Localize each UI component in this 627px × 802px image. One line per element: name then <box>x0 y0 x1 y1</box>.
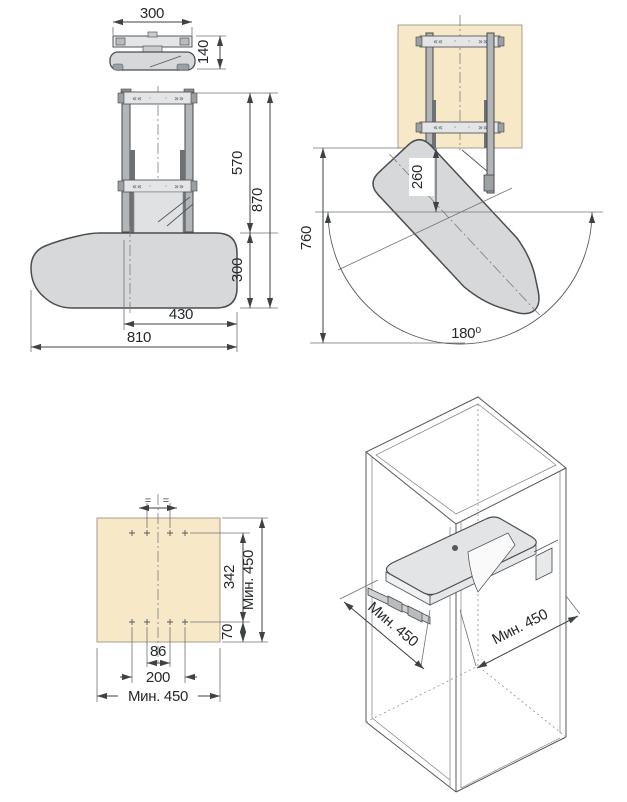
ironing-board-mechanism-drawing: 300 140 «« · · »» <box>0 0 627 802</box>
ironing-board-swung <box>363 130 567 341</box>
bracket-dot: · <box>149 94 152 103</box>
dimension-870: 870 <box>249 93 270 308</box>
equal-mark-left: = <box>145 495 151 507</box>
bracket-arrows-left: «« <box>433 123 443 132</box>
dimension-width-300: 300 <box>113 5 192 35</box>
dim-label-min450-v: Мин. 450 <box>240 550 257 610</box>
rail-bracket-2 <box>408 606 422 622</box>
rail-bracket-1 <box>388 596 402 612</box>
bracket-arrows-right: »» <box>174 182 184 191</box>
bracket-dot: · <box>149 182 152 191</box>
bracket-dot: · <box>454 123 457 132</box>
drilling-template-view: = = 342 70 Мин. 450 86 <box>97 494 268 705</box>
dim-label-300-board: 300 <box>229 258 246 282</box>
mounting-panel <box>97 518 220 642</box>
bracket-dot: · <box>165 94 168 103</box>
ironing-board-outline <box>31 233 237 308</box>
rail-outer-right <box>185 92 193 232</box>
dim-label-430: 430 <box>169 306 193 323</box>
rail-outer-left <box>122 92 130 232</box>
bracket-arrows-left: «« <box>132 94 142 103</box>
hidden-bottom-edge-right <box>478 666 566 737</box>
dim-label-86: 86 <box>150 643 166 660</box>
mount-rail <box>534 540 558 552</box>
dim-label-min450-right: Мин. 450 <box>489 606 550 648</box>
wall-mount-plate <box>536 548 552 580</box>
cabinet-top-face <box>366 397 566 524</box>
dim-label-570: 570 <box>229 151 246 175</box>
dim-label-180deg: 180⁰ <box>451 325 481 342</box>
bracket-arrows-right: »» <box>174 94 184 103</box>
bracket-dot: · <box>468 123 471 132</box>
dimension-min-450-right: Мин. 450 <box>460 596 580 668</box>
bracket-center-tab <box>148 32 157 37</box>
bracket-dot: · <box>468 37 471 46</box>
bracket-arrows-left: «« <box>132 182 142 191</box>
rail-outer-right <box>487 33 494 193</box>
equal-mark-right: = <box>163 495 169 507</box>
dim-label-70: 70 <box>219 624 236 640</box>
dim-label-300-top: 300 <box>140 5 164 22</box>
dim-label-810: 810 <box>127 329 151 346</box>
ironing-board-folded-3d <box>368 517 558 624</box>
dimension-760: 760 <box>298 148 323 343</box>
bracket-dot: · <box>165 182 168 191</box>
dimension-70: 70 <box>219 622 243 642</box>
cabinet-3d-view: Мин. 450 Мин. 450 <box>340 397 580 792</box>
front-view-open: «« · · »» «« · · »» 570 300 <box>31 86 278 352</box>
board-foot-right <box>177 64 189 70</box>
dim-label-260: 260 <box>409 165 426 189</box>
slide-bracket-top: «« · · »» <box>118 92 197 104</box>
dim-label-870: 870 <box>249 188 266 212</box>
bracket-clip-left <box>116 38 125 45</box>
dim-label-140: 140 <box>195 40 212 64</box>
board-foot-left <box>113 64 123 70</box>
cabinet-wireframe <box>366 397 566 792</box>
swing-side-view: «« · · »» «« · · »» 260 <box>298 15 603 344</box>
latch-knob <box>452 545 458 551</box>
support-block <box>134 192 183 234</box>
dim-label-min450-h: Мин. 450 <box>128 688 188 705</box>
dimension-height-140: 140 <box>195 36 226 69</box>
slide-bracket-middle: «« · · »» <box>118 180 197 192</box>
bracket-arrows-left: «« <box>433 37 443 46</box>
pivot-slide-block <box>484 175 494 191</box>
dim-label-760: 760 <box>298 226 315 250</box>
cabinet-top-face-inner <box>376 404 556 514</box>
dim-label-200: 200 <box>146 669 170 686</box>
folded-side-view: 300 140 <box>110 5 226 70</box>
dim-label-342: 342 <box>221 565 238 589</box>
bracket-dot: · <box>454 37 457 46</box>
bracket-clip-right <box>180 38 189 45</box>
technical-drawing-page: 300 140 «« · · »» <box>0 0 627 802</box>
